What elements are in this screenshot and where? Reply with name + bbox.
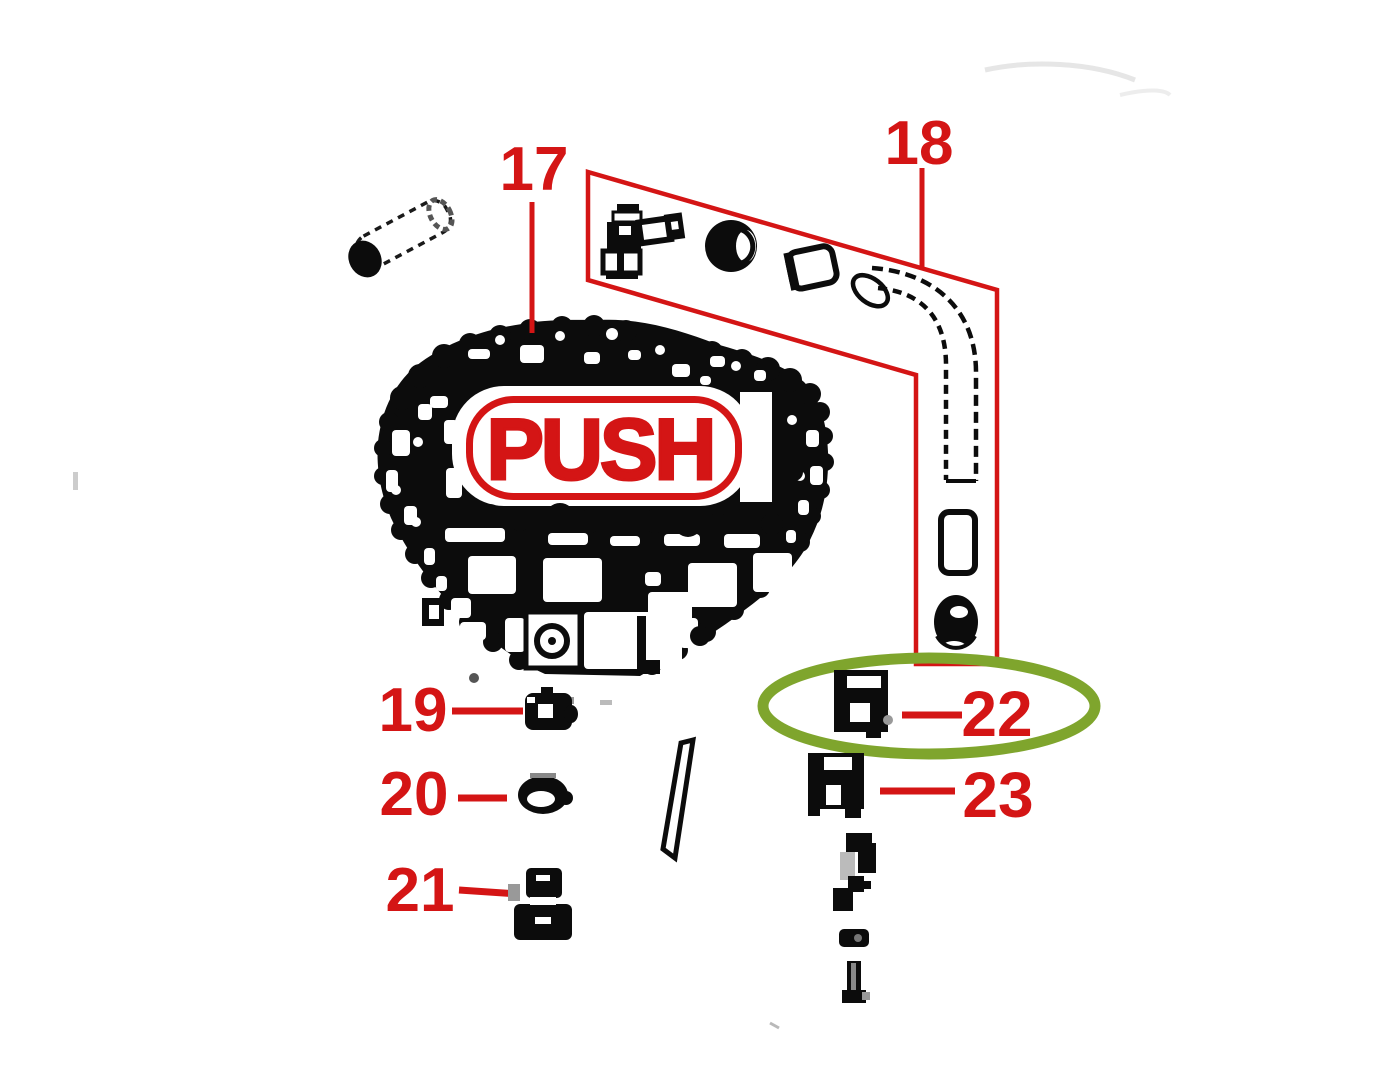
svg-text:22: 22 <box>961 678 1032 750</box>
svg-text:PUSH: PUSH <box>487 402 714 498</box>
svg-text:20: 20 <box>380 760 449 829</box>
svg-text:19: 19 <box>379 676 448 745</box>
svg-text:21: 21 <box>386 856 455 925</box>
svg-text:18: 18 <box>885 109 954 178</box>
svg-text:17: 17 <box>500 135 569 204</box>
svg-text:23: 23 <box>962 759 1033 831</box>
